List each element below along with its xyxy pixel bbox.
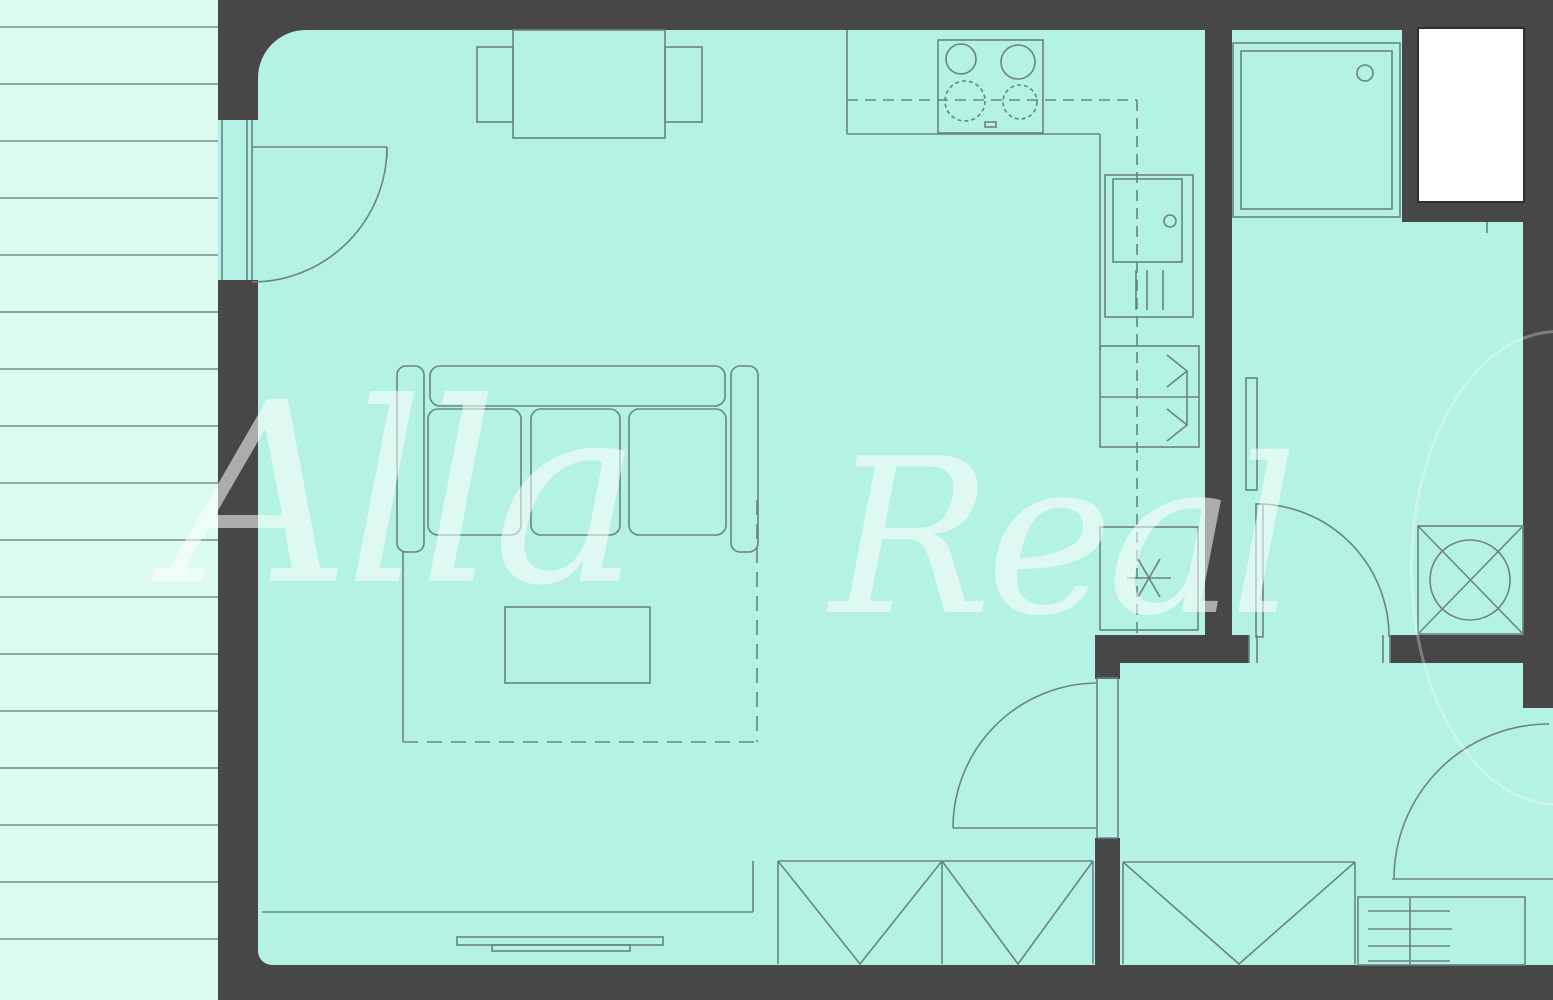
rug-edge-dashed xyxy=(403,500,757,742)
window-opening-icon xyxy=(778,861,1093,964)
door-swing-arc xyxy=(1394,724,1549,879)
washing-machine-cross xyxy=(1418,526,1523,634)
door-frame xyxy=(222,120,252,280)
chair-icon xyxy=(477,47,513,122)
sofa-cushion xyxy=(428,409,521,535)
radiator xyxy=(457,937,663,945)
coffee-table xyxy=(505,607,650,683)
fridge-handle-icon xyxy=(1164,215,1176,227)
burner-icon xyxy=(1001,45,1035,79)
door-frame xyxy=(1097,678,1118,838)
door-leaf xyxy=(1256,504,1263,637)
kitchen-counter-edge xyxy=(847,30,1100,350)
door-frame xyxy=(1249,635,1390,663)
shower-tray xyxy=(1233,43,1400,217)
door-swing-arc xyxy=(1263,504,1389,637)
shower-tray-inner xyxy=(1241,51,1392,209)
sofa-armrest xyxy=(731,366,758,552)
sofa-armrest xyxy=(397,366,424,552)
plan-linework xyxy=(0,0,1553,1000)
fridge-vent xyxy=(1136,270,1163,310)
stove-control xyxy=(985,122,996,127)
kitchen-counter-centerline xyxy=(847,100,1137,635)
floor-plan: Alla Real xyxy=(0,0,1553,1000)
burner-icon xyxy=(945,81,985,121)
radiator-fins xyxy=(1368,897,1452,965)
window-sill-line xyxy=(262,861,753,912)
chair-icon xyxy=(665,47,702,122)
radiator xyxy=(492,945,630,951)
towel-radiator xyxy=(1246,378,1257,490)
sofa-back xyxy=(430,366,725,406)
door-swing-arc xyxy=(953,683,1097,828)
sofa-cushion xyxy=(531,409,620,535)
window-opening-icon xyxy=(1123,862,1355,964)
dining-table xyxy=(513,30,665,138)
shower-drain-icon xyxy=(1357,65,1373,81)
radiator xyxy=(1358,897,1525,965)
window-frame xyxy=(778,861,1093,964)
burner-icon xyxy=(1003,85,1037,119)
burner-icon xyxy=(946,44,976,74)
window-frame xyxy=(1123,862,1355,964)
door-leaf xyxy=(252,147,387,157)
door-swing-arc xyxy=(252,147,387,282)
fridge-unit xyxy=(1105,175,1193,317)
freezer-star-icon xyxy=(1127,559,1171,597)
sofa-cushion xyxy=(629,409,726,535)
cabinet-door-arrow-icon xyxy=(1167,355,1187,441)
fridge-door xyxy=(1113,179,1182,262)
